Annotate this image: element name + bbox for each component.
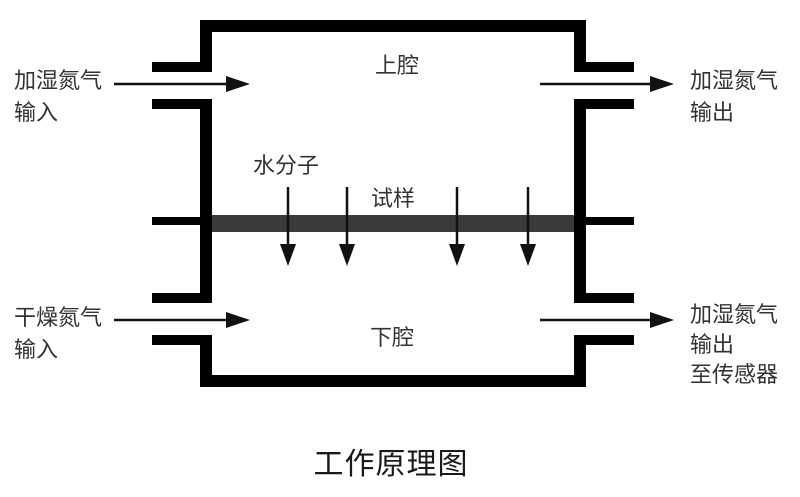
port-flange: [152, 335, 212, 345]
label-line: 至传感器: [690, 360, 778, 390]
working-principle-diagram: 加湿氮气 输入 加湿氮气 输出 干燥氮气 输入 加湿氮气 输出 至传感器 上腔 …: [0, 0, 800, 497]
label-line: 加湿氮气: [690, 65, 778, 97]
label-line: 加湿氮气: [14, 65, 102, 97]
gas-flow-arrowheads: [226, 76, 674, 328]
label-lower-chamber: 下腔: [342, 327, 442, 349]
port-flange: [574, 62, 634, 72]
port-flange: [152, 62, 212, 72]
port-flange: [574, 99, 634, 109]
port-flange: [152, 293, 212, 303]
port-flange: [152, 99, 212, 109]
arrowhead-icon: [650, 76, 674, 92]
label-inlet-dry-nitrogen: 干燥氮气 输入: [14, 302, 102, 366]
water-molecule-arrowheads: [280, 244, 536, 266]
sample-clamp-right: [574, 217, 634, 225]
arrowhead-down-icon: [339, 244, 355, 266]
arrowhead-down-icon: [280, 244, 296, 266]
arrowhead-icon: [226, 312, 250, 328]
arrowhead-icon: [226, 76, 250, 92]
port-flange: [574, 335, 634, 345]
wall-bottom: [200, 375, 586, 387]
arrowhead-down-icon: [449, 244, 465, 266]
label-sample: 试样: [371, 188, 421, 210]
diagram-title: 工作原理图: [291, 448, 491, 482]
wall-right-middle: [574, 99, 586, 303]
label-line: 输出: [690, 97, 778, 129]
port-flange: [574, 293, 634, 303]
label-line: 干燥氮气: [14, 302, 102, 334]
label-line: 加湿氮气: [690, 300, 778, 330]
wall-top: [200, 20, 586, 32]
arrowhead-icon: [650, 312, 674, 328]
sample-membrane: [212, 215, 574, 232]
label-line: 输出: [690, 330, 778, 360]
wall-left-middle: [200, 99, 212, 303]
label-line: 输入: [14, 334, 102, 366]
label-inlet-humid-nitrogen: 加湿氮气 输入: [14, 65, 102, 129]
label-upper-chamber: 上腔: [347, 55, 447, 77]
arrowhead-down-icon: [520, 244, 536, 266]
label-water-molecules: 水分子: [253, 155, 325, 177]
label-line: 输入: [14, 97, 102, 129]
label-outlet-humid-nitrogen: 加湿氮气 输出: [690, 65, 778, 129]
label-outlet-to-sensor: 加湿氮气 输出 至传感器: [690, 300, 778, 390]
sample-clamp-left: [152, 217, 212, 225]
